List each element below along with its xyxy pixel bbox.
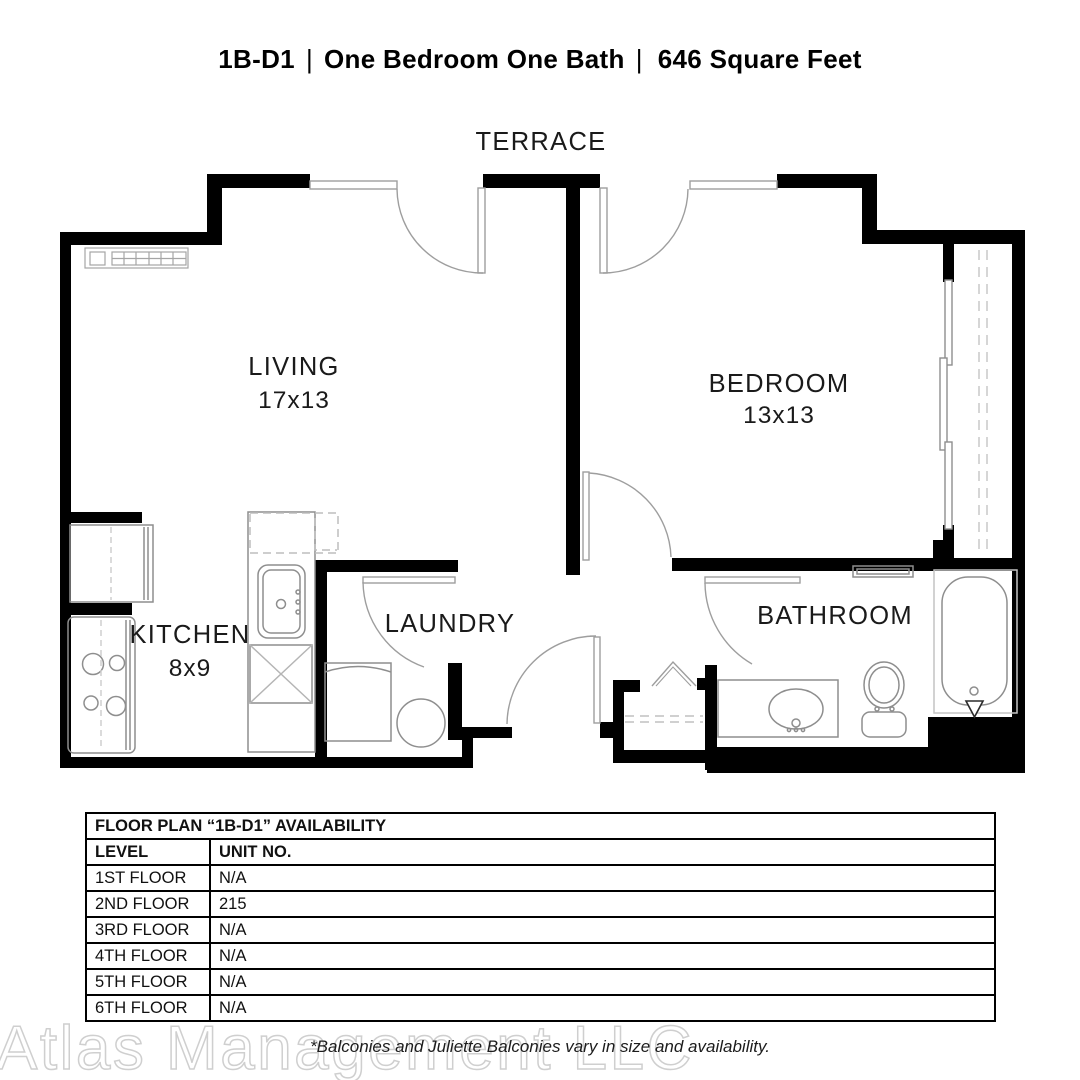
level-cell: 3RD FLOOR [86,917,210,943]
table-row: 3RD FLOOR N/A [86,917,995,943]
unit-cell: 215 [210,891,995,917]
unit-cell: N/A [210,943,995,969]
floor-plan-page: 1B-D1|One Bedroom One Bath|646 Square Fe… [0,0,1080,1080]
balcony-disclaimer: *Balconies and Juliette Balconies vary i… [0,1037,1080,1057]
bedroom-window-wall [940,250,987,556]
table-row: 4TH FLOOR N/A [86,943,995,969]
kitchen-label: KITCHEN [129,621,250,649]
walls [60,174,1025,773]
kitchen-dims: 8x9 [169,655,212,682]
bedroom-label: BEDROOM [709,370,850,398]
bathtub [934,570,1017,717]
toilet [862,662,906,737]
terrace-sliding-panel-right [690,181,777,189]
table-row: 2ND FLOOR 215 [86,891,995,917]
terrace-door-bedroom [600,188,688,273]
laundry-basin [397,699,445,747]
unit-cell: N/A [210,917,995,943]
washer [325,663,391,741]
bedroom-door [583,472,671,560]
refrigerator [70,525,153,602]
doors [310,181,800,724]
table-title-row: FLOOR PLAN “1B-D1” AVAILABILITY [86,813,995,839]
stove [68,617,135,753]
unit-cell: N/A [210,969,995,995]
table-header-row: LEVEL UNIT NO. [86,839,995,865]
closet-shelf [625,716,703,722]
entry-door [507,636,600,724]
column-header-level: LEVEL [86,839,210,865]
unit-cell: N/A [210,865,995,891]
table-title: FLOOR PLAN “1B-D1” AVAILABILITY [86,813,995,839]
kitchen-sink [258,565,305,638]
level-cell: 2ND FLOOR [86,891,210,917]
level-cell: 4TH FLOOR [86,943,210,969]
terrace-sliding-panel-left [310,181,397,189]
closet-bifold-door [652,662,696,686]
vanity-sink [718,680,838,737]
living-dims: 17x13 [258,387,330,414]
table-row: 1ST FLOOR N/A [86,865,995,891]
hvac-unit [85,248,188,268]
floor-plan: TERRACE LIVING 17x13 BEDROOM 13x13 KITCH… [0,0,1080,800]
bathroom-fixtures [718,566,1017,737]
table-row: 5TH FLOOR N/A [86,969,995,995]
bedroom-dims: 13x13 [743,402,815,429]
level-cell: 5TH FLOOR [86,969,210,995]
laundry-fixtures [325,663,445,747]
level-cell: 1ST FLOOR [86,865,210,891]
living-label: LIVING [248,353,339,381]
terrace-door-living [397,188,485,273]
laundry-label: LAUNDRY [385,610,516,638]
dishwasher [250,645,312,703]
terrace-label: TERRACE [476,128,607,156]
column-header-unit: UNIT NO. [210,839,995,865]
availability-table: FLOOR PLAN “1B-D1” AVAILABILITY LEVEL UN… [85,812,996,1022]
bathroom-label: BATHROOM [757,602,913,630]
